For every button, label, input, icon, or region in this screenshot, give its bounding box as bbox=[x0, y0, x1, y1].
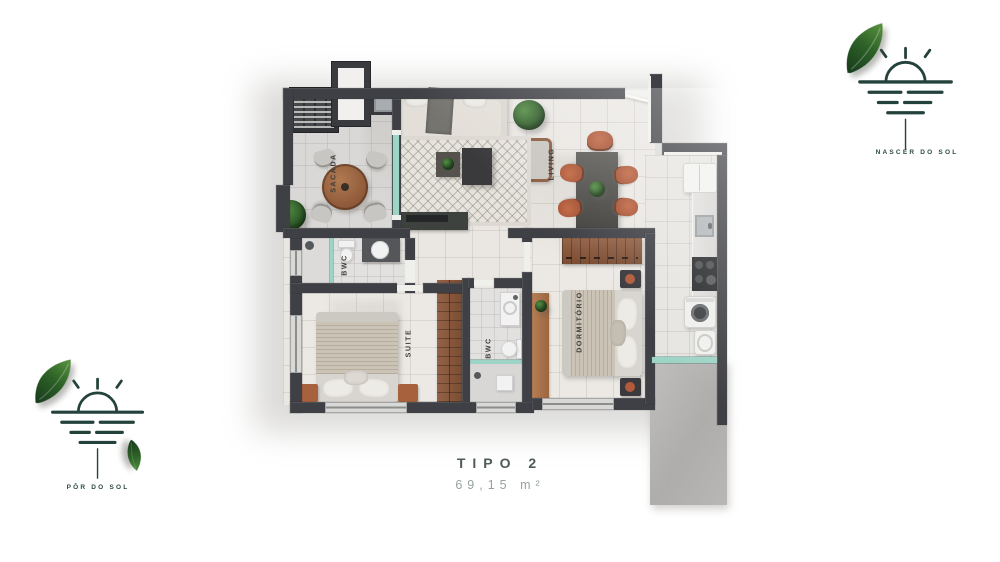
room-label-suite: SUITE bbox=[406, 329, 413, 358]
wall-segment bbox=[283, 88, 625, 99]
floor-plan: SACADA LIVING BWC SUITE BWC DORMITÓRIO bbox=[270, 60, 730, 445]
shower-head-icon bbox=[474, 372, 481, 379]
door-frame-trim bbox=[648, 76, 651, 142]
door-jamb bbox=[392, 215, 401, 220]
logo-nascer-do-sol: NASCER DO SOL bbox=[835, 25, 970, 160]
balcony-round-table bbox=[322, 164, 368, 210]
bathroom-vanity bbox=[500, 292, 520, 326]
kitchen-window-sill bbox=[664, 152, 722, 155]
accent-cushion bbox=[610, 320, 627, 347]
toilet-bowl bbox=[501, 341, 517, 357]
nightstand bbox=[398, 384, 418, 402]
wall-segment bbox=[462, 278, 470, 402]
shower-glass bbox=[330, 237, 333, 283]
room-label-living: LIVING bbox=[549, 148, 556, 181]
toilet-tank bbox=[338, 240, 355, 248]
vanity-basin bbox=[371, 241, 389, 259]
shower-tray bbox=[496, 375, 513, 391]
room-label-bwc-social: BWC bbox=[486, 337, 493, 359]
bed-suite bbox=[316, 312, 398, 402]
service-glass-door bbox=[652, 357, 717, 363]
wall-segment bbox=[717, 155, 727, 425]
door-sill bbox=[405, 260, 415, 283]
dining-table bbox=[576, 152, 618, 230]
page: { "plan": { "rooms": { "sacada": { "labe… bbox=[0, 0, 1000, 562]
accent-cushion bbox=[344, 369, 369, 385]
tank-basin bbox=[697, 334, 713, 352]
nightstand bbox=[620, 270, 641, 288]
coffee-table-plant bbox=[442, 158, 454, 170]
wall-segment bbox=[276, 185, 290, 232]
logo-por-do-sol: PÔR DO SOL bbox=[30, 358, 180, 508]
leaf-icon bbox=[837, 21, 895, 79]
wall-segment bbox=[650, 74, 662, 143]
door-sill bbox=[397, 285, 423, 291]
washing-machine bbox=[684, 296, 716, 328]
door-sill bbox=[474, 280, 494, 286]
living-plant bbox=[513, 100, 545, 130]
wall-segment bbox=[405, 238, 415, 260]
washer-panel bbox=[686, 298, 714, 302]
wardrobe-dormitorio bbox=[562, 238, 642, 264]
coffee-table-small bbox=[436, 152, 460, 177]
shower-head-icon bbox=[305, 241, 314, 250]
balcony-glass-door bbox=[393, 135, 399, 215]
bed-blanket bbox=[316, 322, 398, 374]
room-label-bwc-suite: BWC bbox=[342, 254, 349, 276]
burner-icon bbox=[706, 275, 716, 285]
wardrobe-suite bbox=[437, 280, 462, 402]
shower-area bbox=[468, 364, 522, 402]
wall-segment bbox=[283, 88, 293, 185]
coffee-table-large bbox=[462, 148, 492, 185]
logo-por-label: PÔR DO SOL bbox=[38, 484, 158, 491]
fridge-door-line bbox=[699, 165, 700, 191]
toilet bbox=[501, 339, 522, 359]
window bbox=[290, 315, 302, 373]
logo-nascer-label: NASCER DO SOL bbox=[867, 149, 967, 156]
wall-segment bbox=[522, 272, 532, 402]
cooktop bbox=[692, 257, 717, 291]
faucet-icon bbox=[513, 295, 518, 300]
room-label-sacada: SACADA bbox=[331, 153, 338, 193]
desk-dormitorio bbox=[532, 293, 549, 403]
wall-segment bbox=[283, 228, 410, 238]
dining-chair bbox=[613, 197, 638, 217]
table-center-detail bbox=[341, 183, 349, 191]
window bbox=[542, 398, 614, 410]
dining-chair bbox=[587, 131, 613, 151]
bed-dormitorio bbox=[562, 290, 642, 376]
door-sill bbox=[524, 242, 530, 272]
window bbox=[476, 402, 516, 413]
burner-icon bbox=[695, 261, 703, 269]
faucet-icon bbox=[708, 223, 712, 229]
wardrobe-handle-row bbox=[566, 257, 638, 259]
wall-segment bbox=[423, 283, 462, 293]
leaf-icon bbox=[28, 358, 81, 409]
wall-segment bbox=[645, 233, 655, 404]
kitchen-sink bbox=[695, 215, 714, 237]
nightstand bbox=[620, 378, 641, 396]
window bbox=[325, 402, 407, 413]
bathroom-vanity bbox=[362, 238, 400, 262]
fridge bbox=[683, 163, 717, 193]
dining-table-plant bbox=[589, 181, 605, 197]
niche-cell bbox=[338, 96, 364, 120]
ac-grille bbox=[294, 94, 334, 128]
wall-segment bbox=[290, 283, 397, 293]
burner-icon bbox=[695, 275, 703, 283]
nightstand-decor bbox=[625, 382, 635, 392]
vanity-basin bbox=[503, 301, 517, 315]
tv-icon bbox=[406, 215, 448, 222]
wall-segment bbox=[494, 278, 522, 288]
wall-segment bbox=[508, 228, 655, 238]
niche-cell bbox=[338, 68, 364, 90]
desk-plant bbox=[535, 300, 547, 312]
window bbox=[290, 250, 302, 276]
room-label-dormitorio: DORMITÓRIO bbox=[577, 291, 584, 353]
door-jamb bbox=[392, 130, 401, 135]
nightstand-decor bbox=[625, 274, 635, 284]
burner-icon bbox=[706, 261, 714, 269]
wardrobe-center-line bbox=[449, 280, 450, 402]
laundry-tank bbox=[694, 330, 716, 355]
nightstand bbox=[300, 384, 318, 402]
washer-door-icon bbox=[691, 304, 709, 322]
